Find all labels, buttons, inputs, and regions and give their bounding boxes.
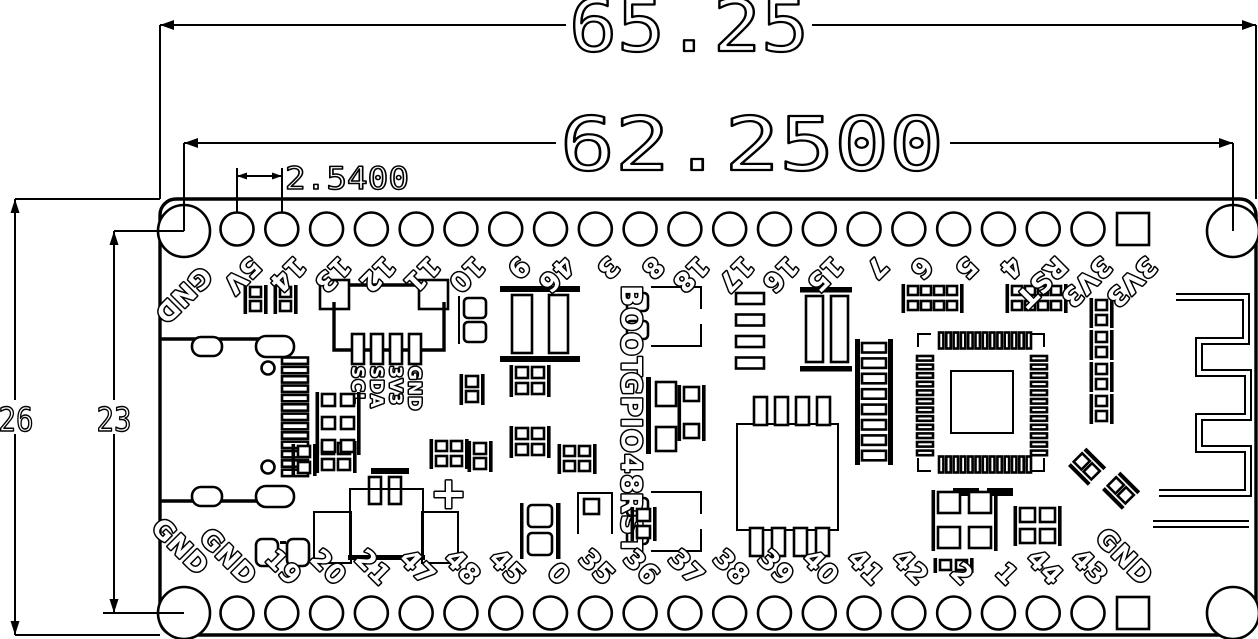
- cluster-bar: [1110, 394, 1114, 424]
- cluster-bar: [468, 441, 472, 472]
- capacitor-footprint-small: [459, 296, 486, 344]
- capacitor-footprint-large: [500, 286, 580, 362]
- usb-pin-pad: [282, 367, 308, 373]
- pin-pad: [848, 213, 881, 246]
- cluster-bar: [960, 284, 964, 313]
- diagonal-passives: [1068, 448, 1140, 510]
- gpio48-label: GPIO48: [615, 372, 648, 495]
- flash-pin-pad: [794, 528, 807, 556]
- pin-pad: [579, 597, 612, 630]
- cluster-bar: [1090, 330, 1094, 360]
- qfn-pad: [990, 333, 994, 349]
- cluster-pad: [684, 387, 699, 401]
- cluster-bar: [510, 365, 514, 397]
- cluster-pad: [532, 367, 544, 378]
- pin-pad: [400, 213, 433, 246]
- cluster-bar: [547, 365, 551, 397]
- small-ic-footprint: [736, 287, 852, 372]
- cluster-pad: [921, 286, 931, 295]
- cluster-pad: [516, 367, 528, 378]
- pin-label: 7: [859, 250, 894, 285]
- pin-label: 3V3: [1099, 250, 1162, 313]
- cluster-pad: [1040, 508, 1055, 522]
- misc-footprints: [244, 284, 1114, 573]
- cluster-pad: [1096, 347, 1107, 357]
- pin-pad: [668, 213, 701, 246]
- qfn-pad: [917, 408, 933, 413]
- pin-pad: [758, 597, 791, 630]
- flash-pin-pad: [817, 397, 830, 425]
- qfn-pad: [917, 425, 933, 430]
- pin-pad: [848, 597, 881, 630]
- cluster-pad: [969, 527, 991, 548]
- qfn-pad: [976, 333, 980, 349]
- pin-pad: [355, 213, 388, 246]
- cluster-pad: [516, 444, 528, 455]
- qfn-pad: [1031, 451, 1047, 456]
- pcb-dimension-drawing: 65.25 62.2500 2.5400 26 23: [0, 0, 1258, 639]
- qfn-chip-footprint: [917, 333, 1047, 497]
- pin-label: 16: [756, 250, 804, 298]
- flash-pin-pad: [775, 397, 788, 425]
- cluster-pad: [474, 458, 486, 469]
- jst-pin-pad: [352, 334, 364, 364]
- usb-pin-pad: [282, 423, 308, 429]
- qfn-pad: [997, 333, 1001, 349]
- ladder-pad: [862, 435, 886, 445]
- cluster-bar: [593, 444, 597, 474]
- qfn-pad: [961, 457, 965, 473]
- cluster-pad: [1096, 379, 1107, 389]
- qfn-pad: [968, 333, 972, 349]
- qfn-pad: [1031, 382, 1047, 387]
- board-drawing: 65.25 62.2500 2.5400 26 23: [0, 0, 1258, 639]
- ladder-pad: [862, 343, 886, 353]
- cluster-bar: [489, 441, 493, 472]
- cluster-bar: [1014, 506, 1018, 546]
- cluster-bar: [357, 392, 361, 455]
- qfn-pad: [1031, 425, 1047, 430]
- pin-pad: [803, 597, 836, 630]
- cluster-pad: [1096, 332, 1107, 342]
- jst-connector: [320, 280, 448, 364]
- cluster-bar: [460, 374, 464, 405]
- dimension-overall-height: 26: [0, 199, 160, 635]
- pin-label: 3: [590, 250, 625, 285]
- gpio48-led-footprint: GPIO48: [615, 372, 676, 495]
- pin-label: 20: [304, 544, 352, 592]
- cluster-bar: [1006, 284, 1010, 313]
- usb-pin-pad: [282, 414, 308, 420]
- pin-pad: [221, 597, 254, 630]
- flash-pin-pad: [796, 397, 809, 425]
- cluster-pad: [579, 446, 590, 456]
- pin-pad: [1072, 213, 1105, 246]
- cluster-pad: [1020, 508, 1035, 522]
- pin-pad: [668, 597, 701, 630]
- qfn-pad: [917, 442, 933, 447]
- qfn-pad: [917, 365, 933, 370]
- ic-pin-pad: [736, 336, 764, 347]
- qfn-pad: [917, 433, 933, 438]
- pin-pad: [937, 213, 970, 246]
- cluster-pad: [298, 446, 310, 457]
- pin-pad: [444, 213, 477, 246]
- qfn-pad: [1027, 457, 1031, 473]
- cluster-bar: [1110, 362, 1114, 392]
- bottom-pin-row: GNDGND1920214748450353637383940414221444…: [145, 513, 1158, 630]
- io-header-label: 3V3: [385, 366, 405, 406]
- usb-pin-pad: [282, 386, 308, 392]
- pin-pad: [1027, 213, 1060, 246]
- antenna-meander: [1153, 297, 1249, 524]
- pin-label: 12: [352, 250, 400, 298]
- pin-label: 38: [707, 544, 755, 592]
- qfn-pad: [1031, 399, 1047, 404]
- cluster-bar: [1110, 330, 1114, 360]
- pin-label: 48: [438, 544, 486, 592]
- qfn-pad: [1019, 457, 1023, 473]
- cluster-pad: [947, 286, 957, 295]
- pin-label: 14: [263, 250, 311, 298]
- cluster-bar: [481, 374, 485, 405]
- usb-pin-pad: [282, 404, 308, 410]
- cluster-bar: [1090, 298, 1094, 328]
- ladder-pad: [862, 374, 886, 384]
- cluster-pad: [322, 417, 335, 429]
- cluster-pad: [938, 492, 960, 513]
- dim-overall-height-text: 26: [0, 400, 34, 439]
- cluster-pad: [934, 286, 944, 295]
- usb-pin-pad: [282, 432, 308, 438]
- qfn-pad: [976, 457, 980, 473]
- cluster-pad: [451, 456, 462, 466]
- pin-pad: [534, 597, 567, 630]
- qfn-pad: [946, 457, 950, 473]
- pin-pad: [265, 597, 298, 630]
- pin-pad: [310, 597, 343, 630]
- cluster-bar: [294, 285, 298, 314]
- ic-pin-pad: [736, 358, 764, 369]
- qfn-pad: [946, 333, 950, 349]
- cluster-pad: [1096, 315, 1107, 325]
- qfn-pad: [961, 333, 965, 349]
- pin-pad: [892, 213, 925, 246]
- usb-pin-pad: [282, 358, 308, 364]
- cluster-pad: [322, 394, 335, 406]
- boot-button-footprint: BOOT: [615, 285, 701, 377]
- qfn-pad: [917, 356, 933, 361]
- qfn-pad: [954, 333, 958, 349]
- pin-label: 44: [1020, 544, 1068, 592]
- qfn-pad: [1031, 408, 1047, 413]
- pin-pad: [1027, 597, 1060, 630]
- cluster-pad: [921, 301, 931, 310]
- pin-label: 41: [841, 544, 889, 592]
- qfn-pad: [939, 333, 943, 349]
- cluster-pad: [579, 461, 590, 471]
- cluster-bar: [653, 507, 657, 541]
- cluster-pad: [474, 443, 486, 454]
- pin-label: 42: [886, 544, 934, 592]
- qfn-pad: [917, 451, 933, 456]
- pin-label: 47: [393, 544, 441, 592]
- io-header-label: SDA: [366, 366, 386, 409]
- qfn-pad: [1019, 333, 1023, 349]
- pin-pad: [489, 597, 522, 630]
- ladder-pad: [862, 451, 886, 461]
- pin-pad-square: [1117, 597, 1149, 629]
- cluster-bar: [994, 490, 998, 551]
- pin-pad: [400, 597, 433, 630]
- cluster-bar: [264, 285, 268, 314]
- cluster-pad: [947, 301, 957, 310]
- jst-pin-pad: [390, 334, 402, 364]
- cluster-pad: [637, 526, 650, 538]
- cluster-bar: [1090, 362, 1094, 392]
- cluster-pad: [436, 456, 447, 466]
- pin-pad: [1072, 597, 1105, 630]
- cluster-pad: [436, 441, 447, 451]
- cluster-pad: [451, 441, 462, 451]
- cluster-pad: [938, 527, 960, 548]
- cluster-pad: [280, 301, 291, 311]
- cluster-bar: [558, 444, 562, 474]
- cluster-pad: [532, 428, 544, 439]
- qfn-pad: [917, 399, 933, 404]
- pin-pad: [713, 597, 746, 630]
- qfn-pad: [917, 390, 933, 395]
- cluster-pad: [564, 446, 575, 456]
- cluster-pad: [934, 301, 944, 310]
- qfn-pad: [1031, 433, 1047, 438]
- cluster-pad: [1096, 364, 1107, 374]
- pin-label: 17: [711, 250, 759, 298]
- cluster-pad: [908, 286, 918, 295]
- battery-positive-label: +: [430, 468, 468, 519]
- pin-pad: [355, 597, 388, 630]
- cluster-pad: [466, 376, 478, 387]
- pin-pad: [444, 597, 477, 630]
- usb-pin-pad: [282, 376, 308, 382]
- cluster-pad: [969, 492, 991, 513]
- pin-label: 1: [989, 557, 1024, 592]
- cluster-bar: [292, 444, 296, 476]
- cluster-pad: [1020, 529, 1035, 543]
- qfn-pad: [997, 457, 1001, 473]
- cluster-bar: [702, 385, 706, 441]
- pin-label: 45: [483, 544, 531, 592]
- pin-pad: [221, 213, 254, 246]
- qfn-pad: [917, 373, 933, 378]
- pin-label: 18: [666, 250, 714, 298]
- qfn-pad: [917, 382, 933, 387]
- qfn-pad: [1031, 373, 1047, 378]
- qfn-pad: [1031, 390, 1047, 395]
- cluster-pad: [250, 287, 261, 297]
- qfn-pad: [1031, 356, 1047, 361]
- cluster-pad: [322, 440, 335, 452]
- pin-pad: [489, 213, 522, 246]
- cluster-pad: [250, 301, 261, 311]
- cluster-bar: [430, 439, 434, 469]
- pin-pad: [713, 213, 746, 246]
- jst-pin-pad: [409, 334, 421, 364]
- qfn-pad: [1005, 333, 1009, 349]
- qfn-pad: [1027, 333, 1031, 349]
- pin-label: 8: [635, 250, 670, 285]
- ladder-pad: [862, 420, 886, 430]
- cluster-bar: [316, 392, 320, 455]
- cluster-pad: [341, 394, 354, 406]
- cluster-pad: [564, 461, 575, 471]
- mounting-hole-bottom-right: [1207, 587, 1258, 639]
- flash-pin-pad: [750, 528, 763, 556]
- pin-pad: [982, 597, 1015, 630]
- cluster-pad: [1096, 300, 1107, 310]
- flash-pin-pad: [754, 397, 767, 425]
- cluster-pad: [338, 459, 350, 470]
- cluster-pad: [466, 391, 478, 402]
- pad-ladder-footprint: [855, 339, 893, 465]
- cluster-pad: [532, 383, 544, 394]
- qfn-pad: [990, 457, 994, 473]
- pin-label: 21: [348, 544, 396, 592]
- cluster-bar: [510, 426, 514, 458]
- jst-pin-pad: [371, 334, 383, 364]
- cluster-pad: [516, 383, 528, 394]
- cluster-pad: [908, 301, 918, 310]
- cluster-pad: [298, 462, 310, 473]
- pin-label: 5: [948, 250, 983, 285]
- cluster-bar: [678, 385, 682, 441]
- dim-hole-pitch-width-text: 62.2500: [560, 102, 944, 188]
- io-header-label: GND: [404, 366, 424, 411]
- qfn-pad: [917, 416, 933, 421]
- qfn-pad: [939, 457, 943, 473]
- pin-label: 6: [903, 250, 938, 285]
- pin-label: 9: [500, 250, 535, 285]
- pin-pad: [892, 597, 925, 630]
- cluster-bar: [932, 490, 936, 551]
- qfn-pad: [1031, 416, 1047, 421]
- ladder-pad: [862, 389, 886, 399]
- cluster-bar: [1058, 506, 1062, 546]
- pin-pad: [579, 213, 612, 246]
- qfn-pad: [954, 457, 958, 473]
- qfn-pad: [1005, 457, 1009, 473]
- qfn-pad: [1031, 365, 1047, 370]
- top-pin-row: GND5V141312111094638181716157654RST3V33V…: [148, 213, 1162, 330]
- cluster-bar: [631, 507, 635, 541]
- usb-c-connector: [160, 336, 308, 507]
- pin-pad: [624, 213, 657, 246]
- ladder-pad: [862, 358, 886, 368]
- qfn-pad: [968, 457, 972, 473]
- pin-pad: [534, 213, 567, 246]
- pin-pad: [937, 597, 970, 630]
- pin-pad: [758, 213, 791, 246]
- qfn-pad: [1012, 333, 1016, 349]
- cluster-pad: [532, 444, 544, 455]
- ladder-pad: [862, 405, 886, 415]
- cluster-pad: [1096, 396, 1107, 406]
- pin-label: 0: [541, 557, 576, 592]
- boot-label: BOOT: [615, 285, 648, 377]
- cluster-pad: [341, 417, 354, 429]
- dim-overall-width-text: 65.25: [569, 0, 809, 68]
- ic-pin-pad: [736, 293, 764, 304]
- flash-chip-footprint: [737, 397, 838, 556]
- dim-pin-pitch-text: 2.5400: [285, 161, 409, 197]
- pin-pad-square: [1117, 213, 1149, 245]
- ic-pin-pad: [736, 315, 764, 326]
- pin-pad: [803, 213, 836, 246]
- cluster-pad: [516, 428, 528, 439]
- cluster-pad: [684, 424, 699, 438]
- pin-label: 35: [572, 544, 620, 592]
- battery-connector-footprint: +: [314, 468, 468, 563]
- qfn-pad: [1012, 457, 1016, 473]
- pin-pad: [982, 213, 1015, 246]
- cluster-pad: [341, 440, 354, 452]
- qfn-pad: [983, 457, 987, 473]
- pin-pad: [624, 597, 657, 630]
- cluster-pad: [1096, 411, 1107, 421]
- cluster-pad: [940, 560, 951, 570]
- cluster-bar: [1090, 394, 1094, 424]
- cluster-bar: [902, 284, 906, 313]
- pin-pad: [310, 213, 343, 246]
- pin-pad: [265, 213, 298, 246]
- cluster-pad: [1040, 529, 1055, 543]
- cluster-bar: [547, 426, 551, 458]
- cluster-pad: [637, 509, 650, 521]
- dim-hole-pitch-height-text: 23: [97, 400, 132, 439]
- cluster-pad: [1051, 301, 1061, 310]
- qfn-pad: [1031, 442, 1047, 447]
- cluster-pad: [322, 459, 334, 470]
- usb-pin-pad: [282, 395, 308, 401]
- qfn-pad: [983, 333, 987, 349]
